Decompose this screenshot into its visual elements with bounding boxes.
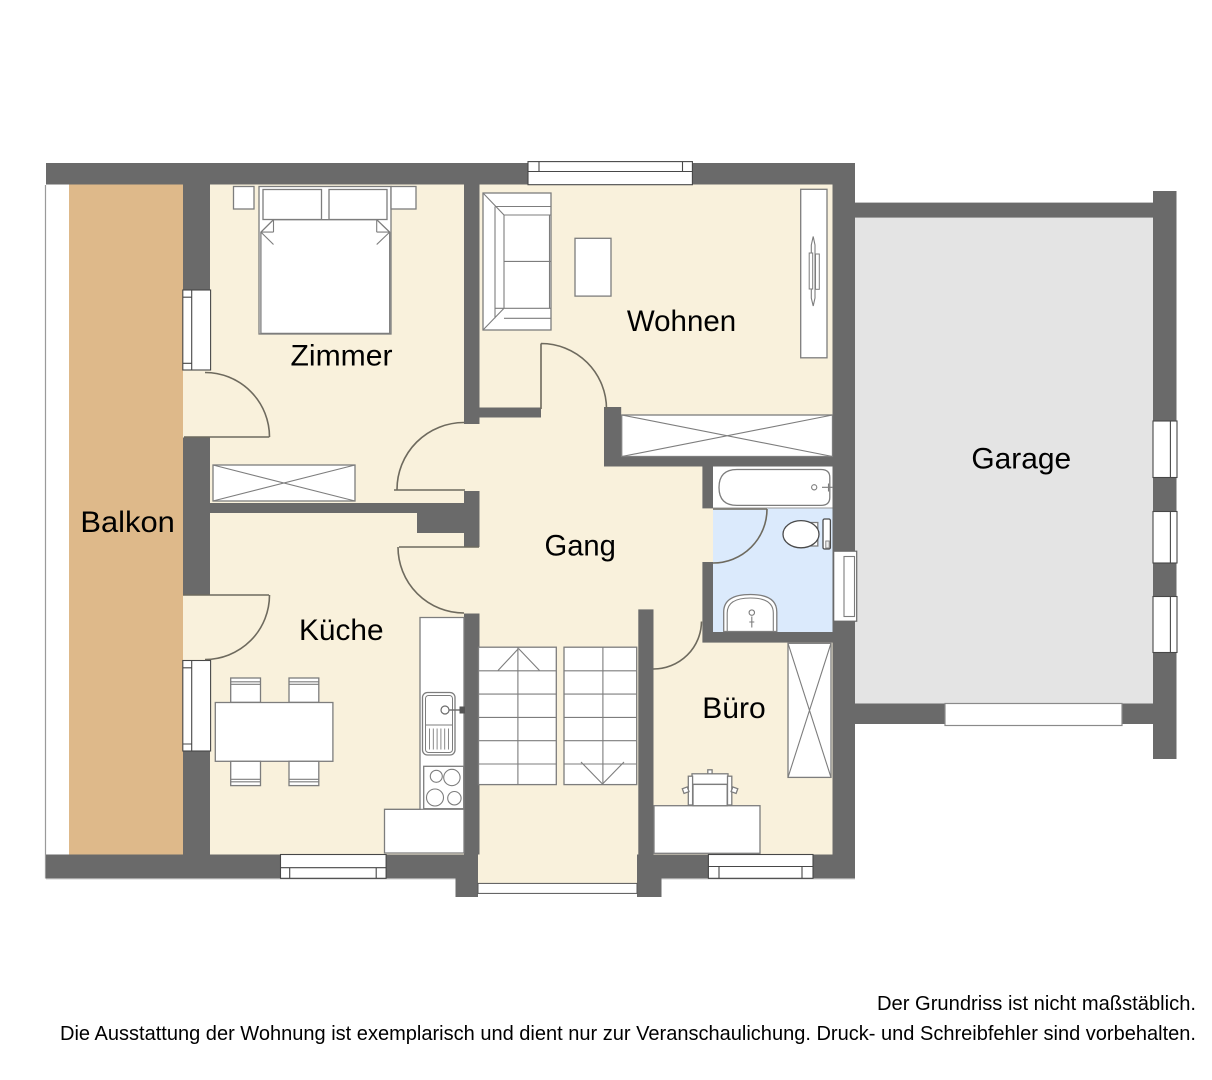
svg-text:Gang: Gang bbox=[545, 530, 616, 563]
svg-text:Büro: Büro bbox=[702, 692, 766, 725]
svg-text:Küche: Küche bbox=[299, 614, 384, 647]
svg-text:Wohnen: Wohnen bbox=[627, 305, 736, 338]
svg-text:Der Grundriss ist nicht maßstä: Der Grundriss ist nicht maßstäblich. bbox=[877, 993, 1196, 1015]
svg-text:Balkon: Balkon bbox=[80, 506, 174, 539]
svg-text:Garage: Garage bbox=[971, 443, 1071, 476]
svg-text:Die Ausstattung der Wohnung is: Die Ausstattung der Wohnung ist exemplar… bbox=[60, 1023, 1196, 1045]
svg-text:Zimmer: Zimmer bbox=[291, 339, 393, 372]
